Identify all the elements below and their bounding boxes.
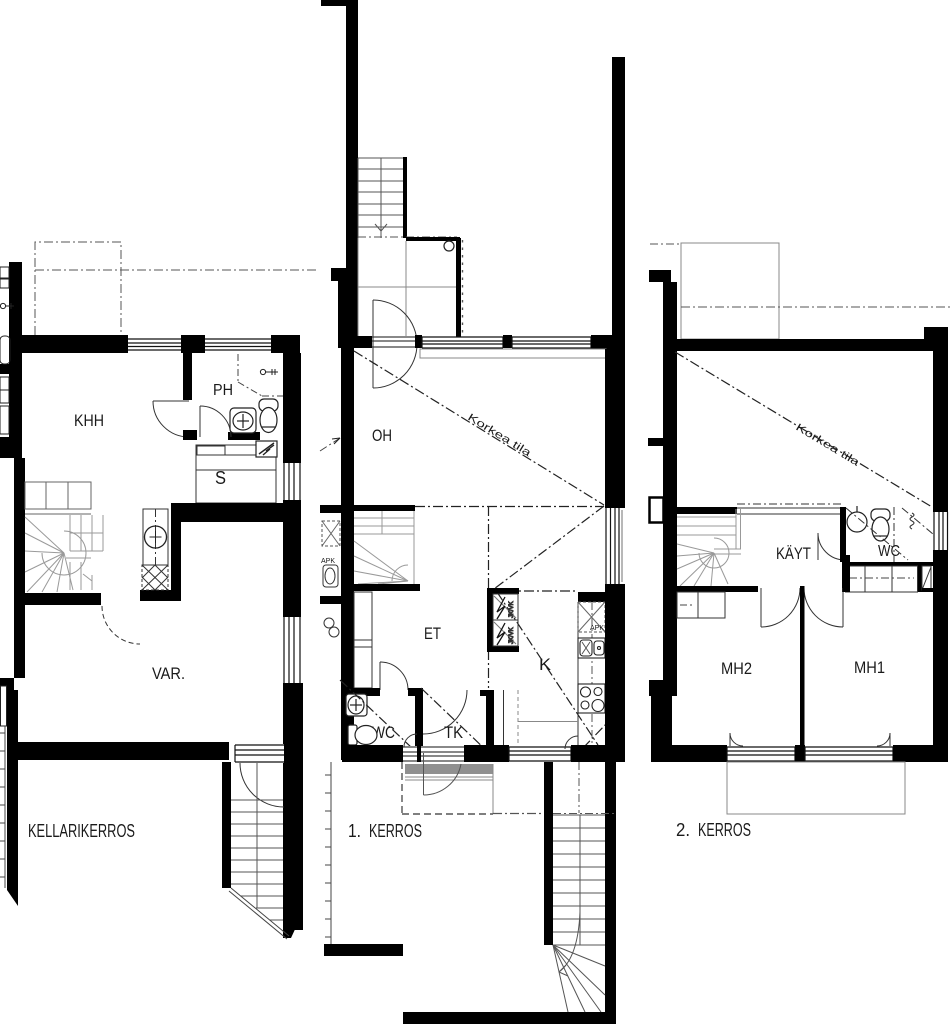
svg-text:2.: 2.	[676, 820, 690, 840]
svg-text:S: S	[215, 468, 226, 488]
svg-text:ET: ET	[424, 624, 441, 643]
svg-text:1.: 1.	[348, 821, 361, 841]
svg-text:APK: APK	[321, 558, 335, 565]
svg-text:KELLARIKERROS: KELLARIKERROS	[28, 821, 135, 841]
svg-text:PH: PH	[213, 382, 233, 399]
svg-text:APK: APK	[590, 625, 604, 632]
svg-text:MH1: MH1	[854, 658, 885, 677]
svg-text:KHH: KHH	[74, 411, 104, 430]
svg-text:KERROS: KERROS	[369, 821, 422, 841]
svg-text:WC: WC	[878, 543, 900, 560]
svg-text:MH2: MH2	[721, 659, 752, 678]
svg-text:OH: OH	[372, 426, 392, 445]
svg-text:JK/VK: JK/VK	[509, 627, 515, 644]
svg-text:KERROS: KERROS	[698, 820, 751, 840]
svg-text:K: K	[539, 655, 552, 674]
svg-text:KÄYT: KÄYT	[776, 544, 811, 563]
svg-text:VAR.: VAR.	[152, 664, 185, 683]
svg-text:JK/VK: JK/VK	[509, 601, 515, 618]
